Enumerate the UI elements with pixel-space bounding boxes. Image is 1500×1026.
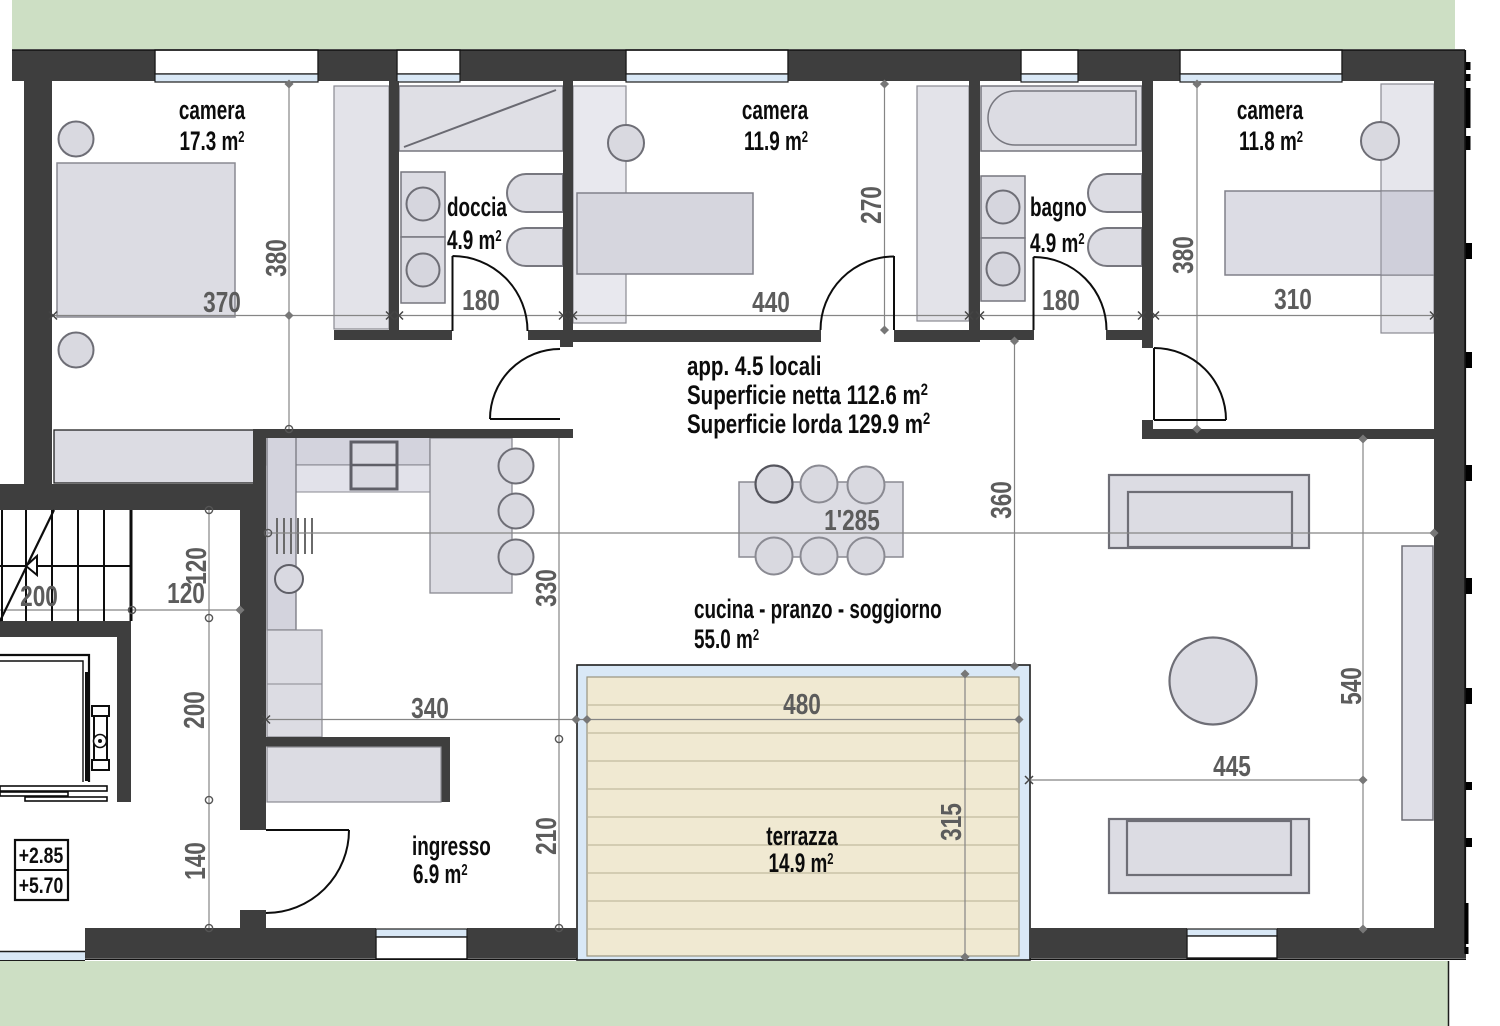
- svg-text:4.9 m2: 4.9 m2: [447, 225, 502, 255]
- svg-text:340: 340: [411, 691, 449, 724]
- svg-text:app. 4.5 locali: app. 4.5 locali: [687, 351, 822, 381]
- svg-text:310: 310: [1274, 282, 1312, 315]
- svg-text:440: 440: [752, 285, 790, 318]
- svg-text:ingresso: ingresso: [412, 831, 491, 861]
- svg-text:315: 315: [934, 803, 967, 841]
- svg-text:14.9 m2: 14.9 m2: [768, 848, 833, 878]
- svg-text:doccia: doccia: [447, 192, 508, 222]
- svg-text:270: 270: [854, 186, 887, 224]
- svg-text:180: 180: [462, 283, 500, 316]
- svg-text:camera: camera: [742, 95, 809, 125]
- svg-text:+5.70: +5.70: [19, 874, 64, 898]
- svg-text:terrazza: terrazza: [766, 821, 838, 851]
- svg-text:200: 200: [177, 691, 210, 729]
- svg-text:445: 445: [1213, 749, 1251, 782]
- svg-text:11.8 m2: 11.8 m2: [1239, 126, 1303, 156]
- svg-text:11.9 m2: 11.9 m2: [744, 126, 808, 156]
- svg-text:480: 480: [783, 687, 821, 720]
- svg-text:1'285: 1'285: [824, 503, 880, 536]
- svg-text:+2.85: +2.85: [19, 844, 64, 868]
- svg-text:camera: camera: [1237, 95, 1304, 125]
- svg-text:17.3 m2: 17.3 m2: [179, 126, 244, 156]
- svg-text:330: 330: [529, 569, 562, 607]
- svg-text:200: 200: [20, 579, 58, 612]
- svg-text:4.9 m2: 4.9 m2: [1030, 228, 1085, 258]
- svg-text:Superficie netta 112.6 m2: Superficie netta 112.6 m2: [687, 380, 928, 410]
- svg-text:540: 540: [1334, 667, 1367, 705]
- svg-text:bagno: bagno: [1030, 192, 1087, 222]
- svg-text:140: 140: [178, 842, 211, 880]
- svg-text:180: 180: [1042, 283, 1080, 316]
- svg-text:6.9 m2: 6.9 m2: [413, 859, 468, 889]
- svg-text:120: 120: [179, 547, 212, 585]
- svg-text:380: 380: [1166, 236, 1199, 274]
- svg-text:370: 370: [203, 285, 241, 318]
- svg-text:380: 380: [259, 239, 292, 277]
- svg-text:360: 360: [984, 481, 1017, 519]
- svg-text:210: 210: [529, 817, 562, 855]
- svg-text:Superficie lorda 129.9 m2: Superficie lorda 129.9 m2: [687, 409, 930, 439]
- svg-text:camera: camera: [179, 95, 246, 125]
- svg-text:55.0 m2: 55.0 m2: [694, 624, 759, 654]
- svg-text:cucina - pranzo - soggiorno: cucina - pranzo - soggiorno: [694, 594, 942, 624]
